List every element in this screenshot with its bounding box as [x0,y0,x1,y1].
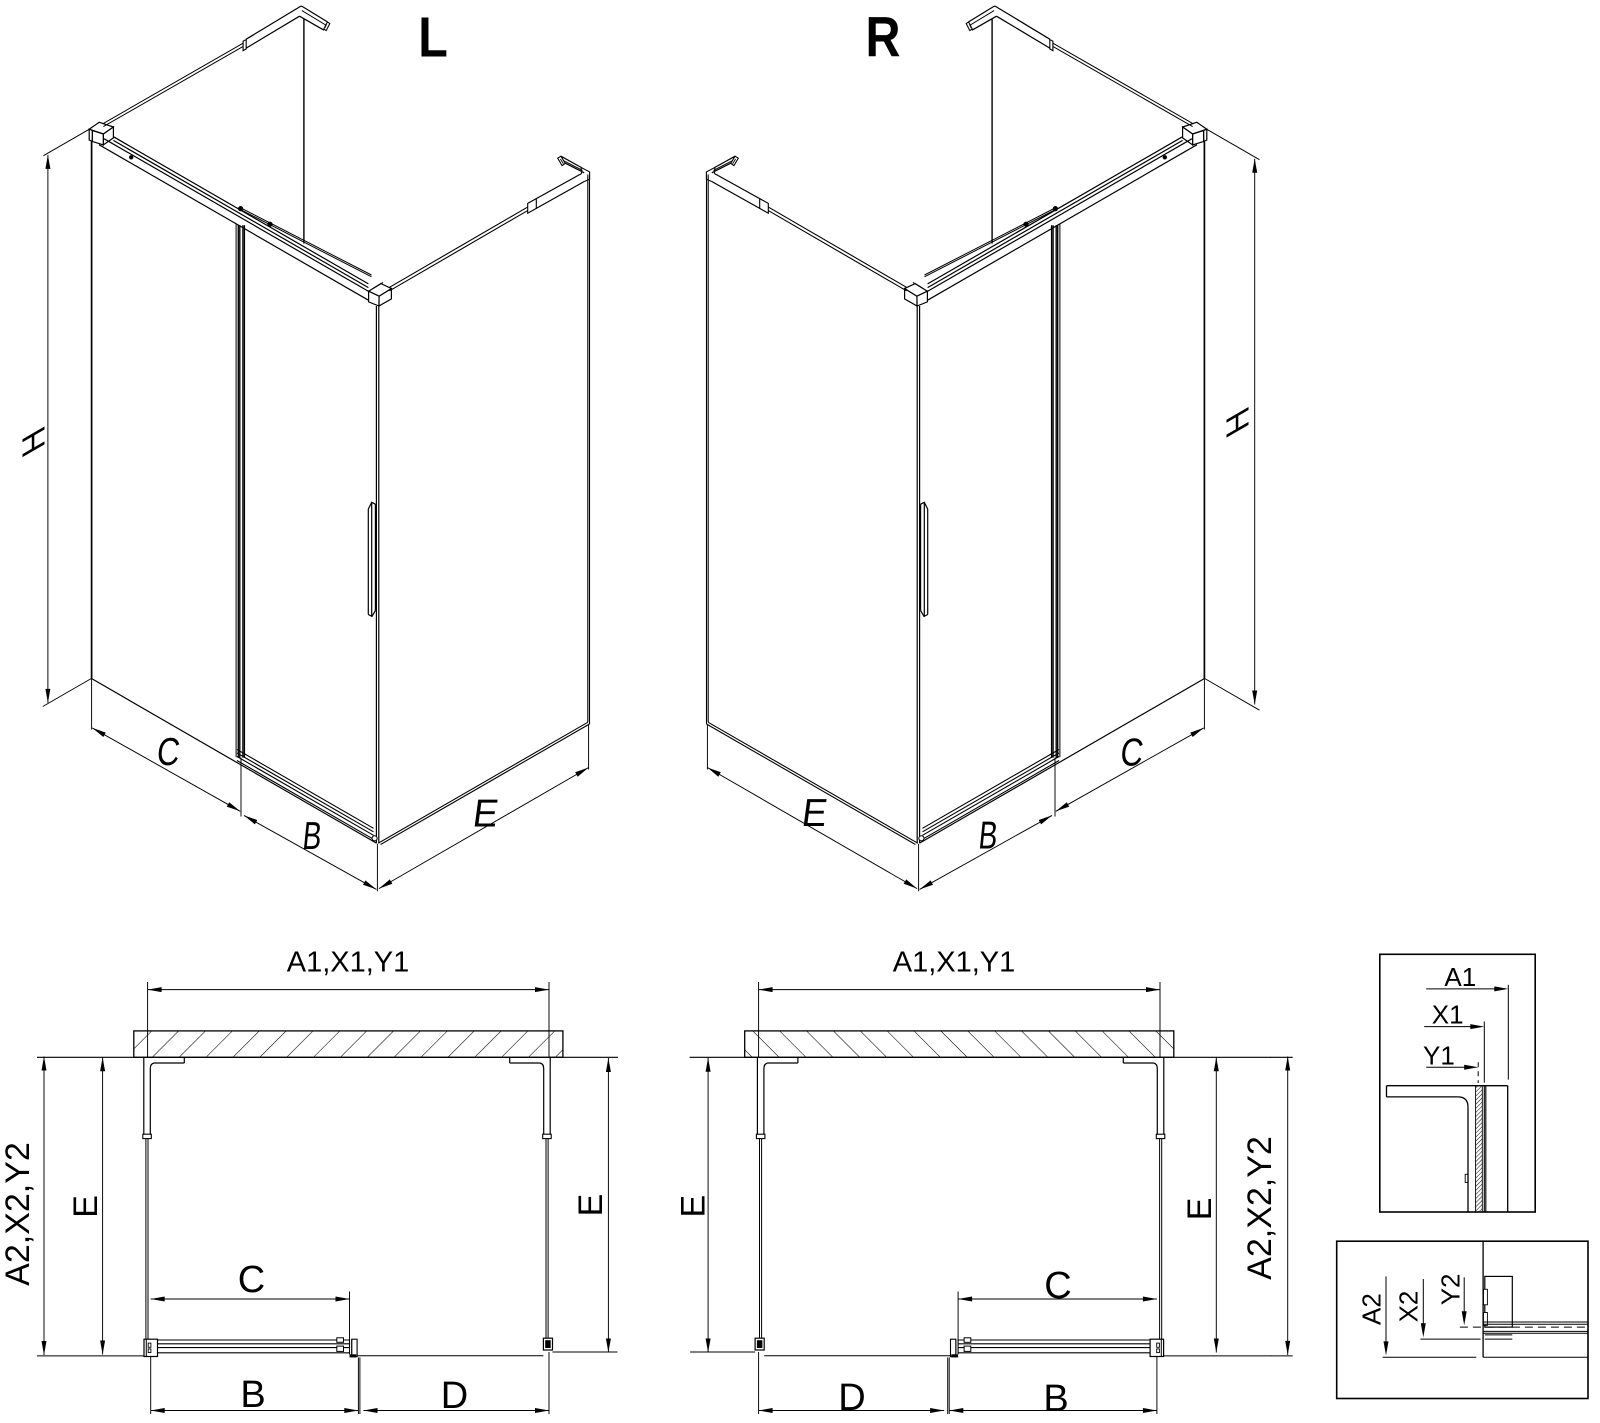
svg-text:E: E [1181,1198,1219,1221]
svg-text:A1,X1,Y1: A1,X1,Y1 [893,947,1016,979]
svg-text:D: D [838,1377,865,1419]
svg-text:A1,X1,Y1: A1,X1,Y1 [287,947,410,979]
svg-text:Y1: Y1 [1423,1040,1455,1070]
svg-text:L: L [418,6,448,70]
svg-text:E: E [67,1195,105,1218]
svg-text:A2,X2,Y2: A2,X2,Y2 [1241,1136,1279,1280]
svg-text:B: B [1043,1378,1068,1420]
svg-text:X1: X1 [1432,1000,1464,1030]
svg-text:X2: X2 [1394,1291,1424,1323]
svg-text:E: E [675,1195,713,1218]
svg-text:C: C [238,1259,265,1301]
svg-text:A2,X2,Y2: A2,X2,Y2 [0,1142,37,1286]
svg-text:B: B [240,1374,265,1416]
svg-text:D: D [441,1375,468,1417]
svg-text:A1: A1 [1444,962,1476,992]
svg-text:C: C [1044,1265,1071,1307]
svg-text:E: E [572,1194,610,1217]
svg-text:R: R [866,6,901,70]
svg-text:A2: A2 [1357,1293,1387,1325]
svg-text:Y2: Y2 [1436,1273,1466,1305]
